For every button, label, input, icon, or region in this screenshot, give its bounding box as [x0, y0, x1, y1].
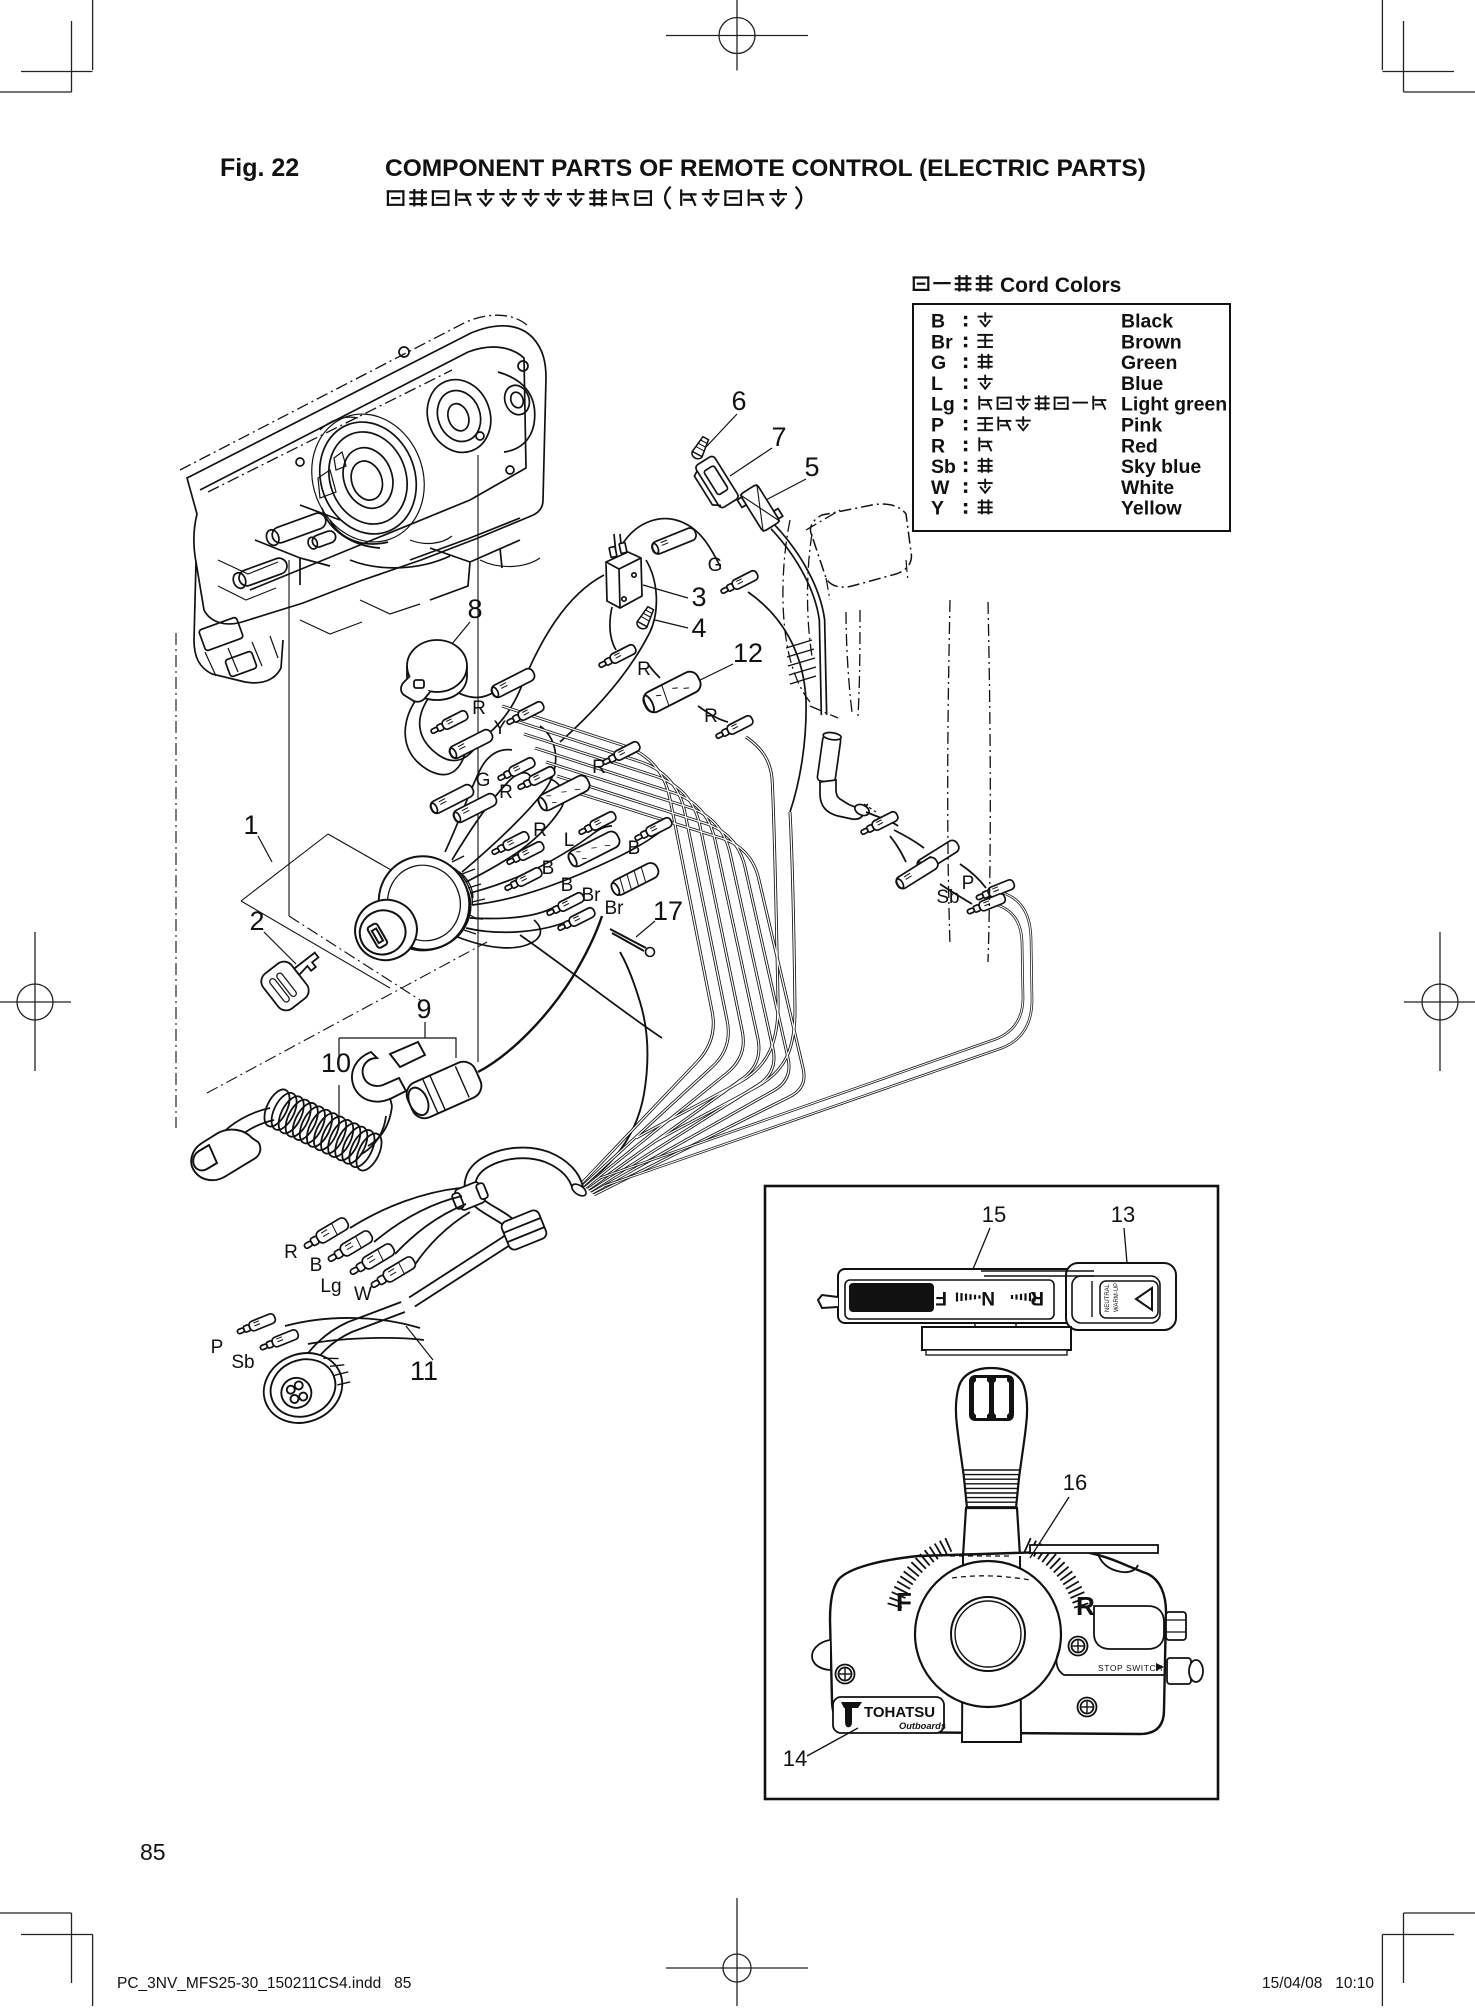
svg-text:16: 16 [1063, 1470, 1087, 1495]
svg-text:Lg: Lg [931, 394, 955, 416]
svg-text:12: 12 [733, 638, 763, 668]
svg-text:Green: Green [1121, 352, 1177, 374]
svg-text:NEUTRAL: NEUTRAL [1105, 1283, 1111, 1312]
svg-text:Red: Red [1121, 435, 1158, 457]
svg-text:P: P [931, 415, 944, 437]
svg-text:F: F [896, 1587, 912, 1617]
svg-text:13: 13 [1111, 1202, 1135, 1227]
svg-text:R: R [592, 757, 606, 778]
svg-text:B: B [561, 875, 574, 896]
svg-text:3: 3 [691, 582, 706, 612]
svg-text:5: 5 [804, 452, 819, 482]
svg-text:R: R [637, 659, 651, 680]
svg-text:B: B [628, 838, 641, 859]
svg-text:8: 8 [467, 594, 482, 624]
svg-text:G: G [708, 555, 723, 576]
svg-text:85: 85 [140, 1839, 166, 1865]
svg-text:15/04/08 10:10: 15/04/08 10:10 [1262, 1975, 1374, 1992]
svg-text:11: 11 [410, 1356, 438, 1386]
svg-text:P: P [211, 1337, 224, 1358]
svg-text:R: R [931, 435, 945, 457]
svg-text:F: F [935, 1287, 947, 1308]
svg-text:Y: Y [931, 498, 944, 520]
svg-text:Br: Br [931, 331, 953, 353]
svg-text:R: R [1076, 1591, 1095, 1621]
svg-text:G: G [476, 770, 491, 791]
svg-text:Yellow: Yellow [1121, 498, 1183, 520]
svg-text:Brown: Brown [1121, 331, 1182, 353]
svg-text:R: R [284, 1242, 298, 1263]
svg-text:Y: Y [494, 718, 507, 739]
svg-text:Light green: Light green [1121, 394, 1227, 416]
svg-text:6: 6 [731, 386, 746, 416]
svg-text:Sb: Sb [931, 456, 956, 478]
svg-text:P: P [962, 873, 975, 894]
svg-text:Br: Br [605, 898, 625, 919]
svg-text:R: R [499, 782, 513, 803]
svg-text:Br: Br [582, 885, 602, 906]
svg-text:Pink: Pink [1121, 415, 1162, 437]
svg-text:7: 7 [771, 422, 786, 452]
svg-text:2: 2 [249, 906, 264, 936]
svg-text:White: White [1121, 477, 1174, 499]
svg-text:Sb: Sb [231, 1352, 254, 1373]
svg-text:9: 9 [416, 994, 431, 1024]
svg-text:WARM-UP: WARM-UP [1114, 1283, 1120, 1312]
svg-text:14: 14 [783, 1746, 807, 1771]
svg-text:17: 17 [653, 896, 683, 926]
svg-text:W: W [354, 1284, 372, 1305]
svg-text:Blue: Blue [1121, 373, 1163, 395]
svg-text:Black: Black [1121, 311, 1173, 333]
svg-text:R: R [472, 698, 486, 719]
svg-text:B: B [931, 311, 945, 333]
svg-text:L: L [564, 830, 575, 851]
svg-text:1: 1 [243, 810, 258, 840]
svg-text:Fig. 22: Fig. 22 [220, 154, 299, 182]
svg-text:W: W [931, 477, 950, 499]
svg-text:Sky blue: Sky blue [1121, 456, 1201, 478]
svg-text:L: L [931, 373, 943, 395]
svg-text:TOHATSU: TOHATSU [864, 1704, 935, 1721]
svg-text:10: 10 [321, 1048, 351, 1078]
svg-text:B: B [310, 1255, 323, 1276]
svg-text:N: N [981, 1287, 995, 1308]
svg-text:R: R [704, 706, 718, 727]
svg-text:4: 4 [691, 613, 706, 643]
svg-text:G: G [931, 352, 946, 374]
svg-text:Cord Colors: Cord Colors [1000, 274, 1121, 297]
svg-text:B: B [542, 858, 555, 879]
svg-text:Outboards: Outboards [899, 1721, 946, 1731]
svg-text:R: R [1030, 1287, 1044, 1308]
svg-text:COMPONENT PARTS OF REMOTE CONT: COMPONENT PARTS OF REMOTE CONTROL (ELECT… [385, 155, 1146, 182]
svg-text:R: R [533, 820, 547, 841]
svg-text:STOP SWITCH: STOP SWITCH [1098, 1663, 1163, 1673]
svg-text:PC_3NV_MFS25-30_150211CS4.indd: PC_3NV_MFS25-30_150211CS4.indd 85 [117, 1975, 411, 1992]
svg-text:Lg: Lg [320, 1276, 341, 1297]
svg-text:15: 15 [982, 1202, 1006, 1227]
